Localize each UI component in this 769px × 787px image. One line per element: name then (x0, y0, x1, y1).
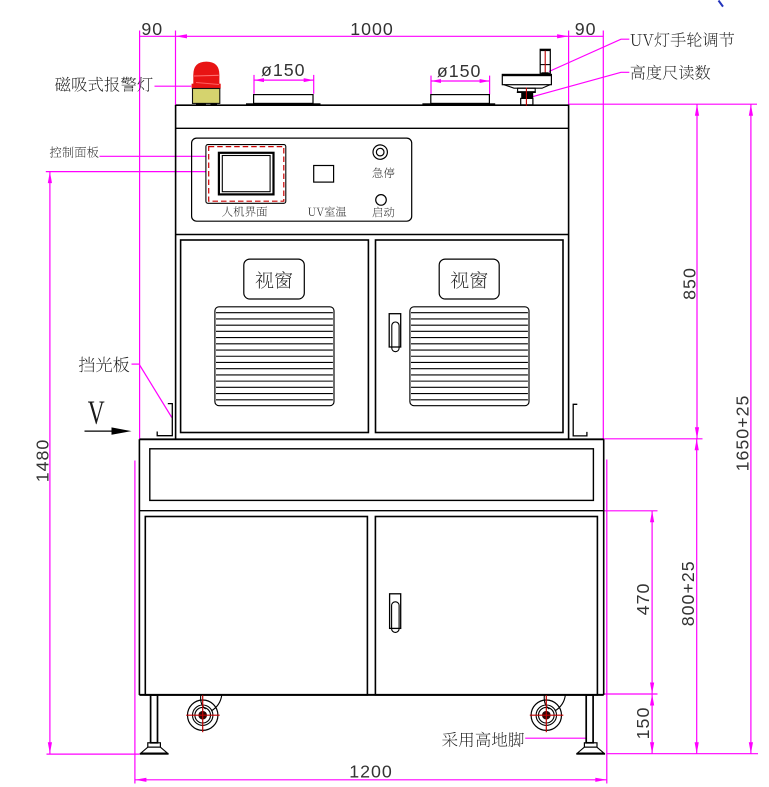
svg-text:1650+25: 1650+25 (733, 395, 753, 472)
svg-text:ø150: ø150 (261, 60, 306, 80)
svg-text:150: 150 (633, 707, 653, 740)
svg-text:1000: 1000 (350, 19, 394, 39)
svg-text:ø150: ø150 (437, 61, 482, 81)
svg-text:90: 90 (141, 19, 163, 39)
svg-text:1200: 1200 (349, 762, 393, 782)
svg-text:470: 470 (633, 583, 653, 616)
svg-text:1480: 1480 (33, 439, 53, 483)
svg-text:90: 90 (575, 19, 597, 39)
svg-text:850: 850 (680, 267, 700, 300)
svg-text:800+25: 800+25 (678, 560, 698, 626)
